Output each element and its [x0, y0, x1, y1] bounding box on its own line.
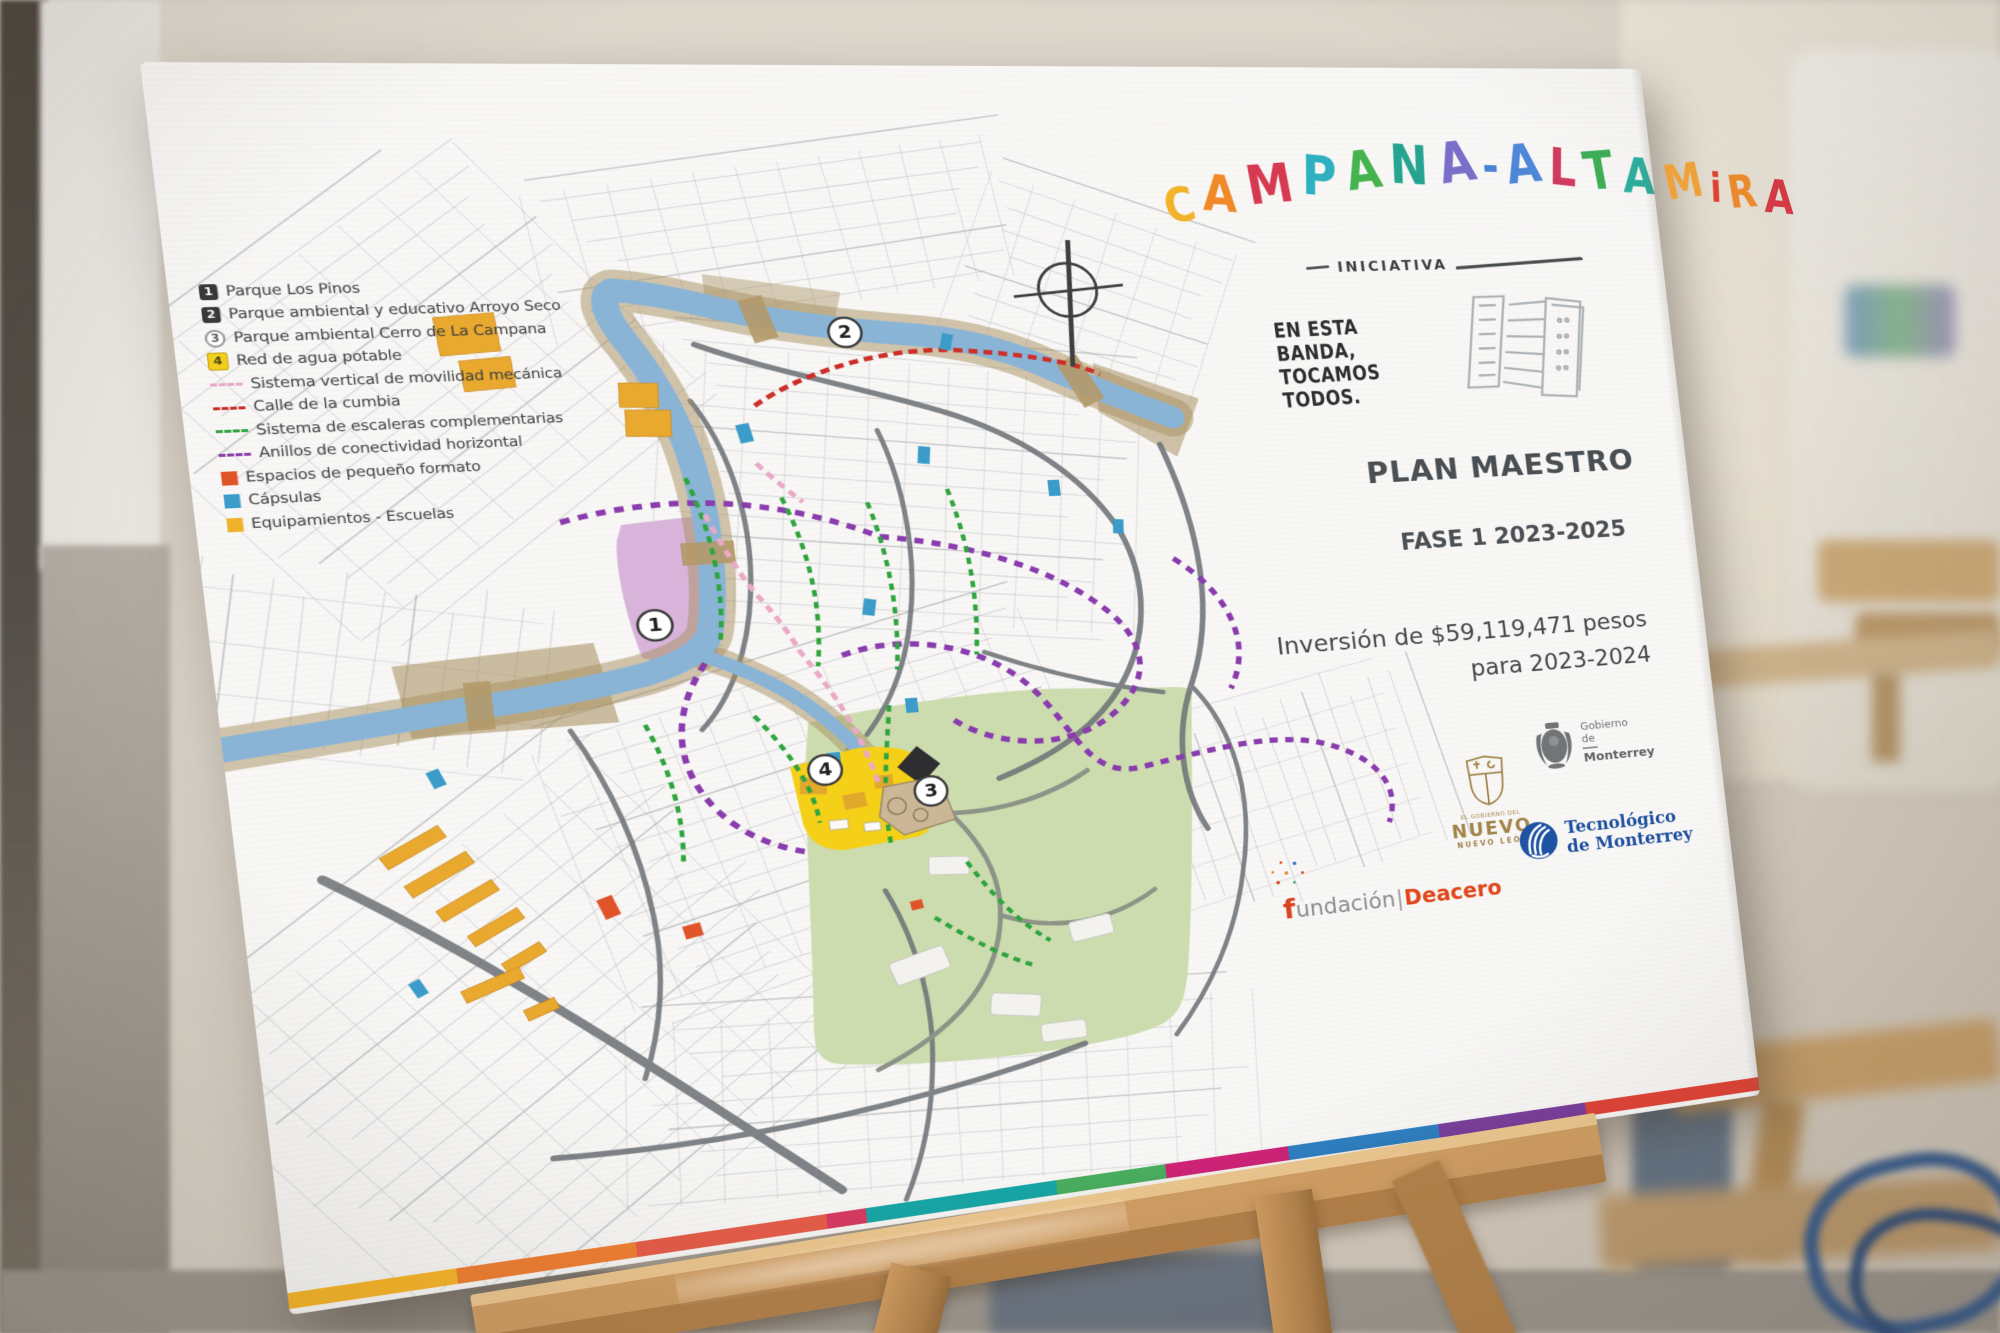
background-colorful-sign [1845, 285, 1955, 357]
svg-text:1: 1 [647, 615, 664, 637]
legend-marker-square: 2 [201, 307, 221, 323]
legend-label: Cápsulas [248, 489, 323, 508]
svg-text:4: 4 [817, 760, 833, 782]
title-letter: P [1302, 144, 1337, 210]
monterrey-crest-icon [1532, 719, 1577, 771]
background-table-leg [1872, 672, 1900, 762]
brush-dash-icon [1455, 256, 1582, 269]
background-table-leg [1741, 1096, 1805, 1260]
legend-marker-circle: 3 [204, 329, 227, 347]
legend-marker-dash [216, 429, 249, 433]
title-letter: L [1548, 136, 1576, 199]
legend-label: Calle de la cumbia [252, 394, 401, 415]
garden-hose [1841, 1197, 2000, 1333]
background-ground-left [40, 545, 170, 1333]
legend-marker-dash [219, 452, 252, 456]
nuevo-leon-shield-icon [1459, 750, 1514, 809]
title-letter: M [1658, 152, 1708, 211]
legend-marker-square: 1 [198, 284, 218, 300]
brush-dash-icon [1306, 265, 1330, 270]
background-picnic-table [1598, 1175, 2000, 1271]
legend-marker-dash [210, 383, 243, 387]
legend-marker-fill [221, 471, 239, 486]
background-picnic-table [1818, 540, 2000, 602]
legend-label: Red de agua potable [235, 348, 402, 369]
tagline-en-esta-banda: EN ESTABANDA,TOCAMOSTODOS. [1272, 315, 1398, 413]
legend-label: Parque Los Pinos [225, 281, 361, 300]
title-letter: M [1240, 151, 1298, 217]
garden-hose [1789, 1134, 2000, 1333]
title-letter: A [1764, 168, 1794, 225]
legend-marker-fill [223, 494, 241, 509]
title-letter: i [1709, 164, 1723, 211]
background-picnic-table [1699, 630, 2000, 689]
svg-text:3: 3 [923, 781, 939, 802]
title-letter: - [1480, 139, 1501, 194]
background-tarp [1790, 50, 2000, 790]
legend-marker-square: 4 [206, 353, 229, 371]
background-door-frame [0, 0, 48, 1333]
title-letter: A [1622, 147, 1655, 206]
campana-altamira-title: CAMPANA-ALTAMiRA [1153, 145, 1578, 215]
map-legend: 1Parque Los Pinos2Parque ambiental y edu… [198, 273, 586, 537]
legend-marker-fill [226, 517, 244, 532]
title-letter: A [1339, 137, 1387, 203]
background-picnic-bench [1855, 612, 2000, 654]
svg-text:2: 2 [837, 323, 853, 344]
tec-circle-icon [1516, 818, 1562, 863]
accordion-sketch-icon [1438, 270, 1601, 434]
title-letter: R [1724, 165, 1761, 219]
legend-marker-dash [213, 406, 246, 410]
mty-rule [1583, 746, 1598, 749]
photo-scene: 1234 1Parque Los Pinos2Parque ambiental … [0, 0, 2000, 1333]
title-letter: A [1202, 163, 1238, 224]
iniciativa-label: INICIATIVA [1336, 256, 1448, 275]
title-letter: N [1388, 133, 1430, 198]
